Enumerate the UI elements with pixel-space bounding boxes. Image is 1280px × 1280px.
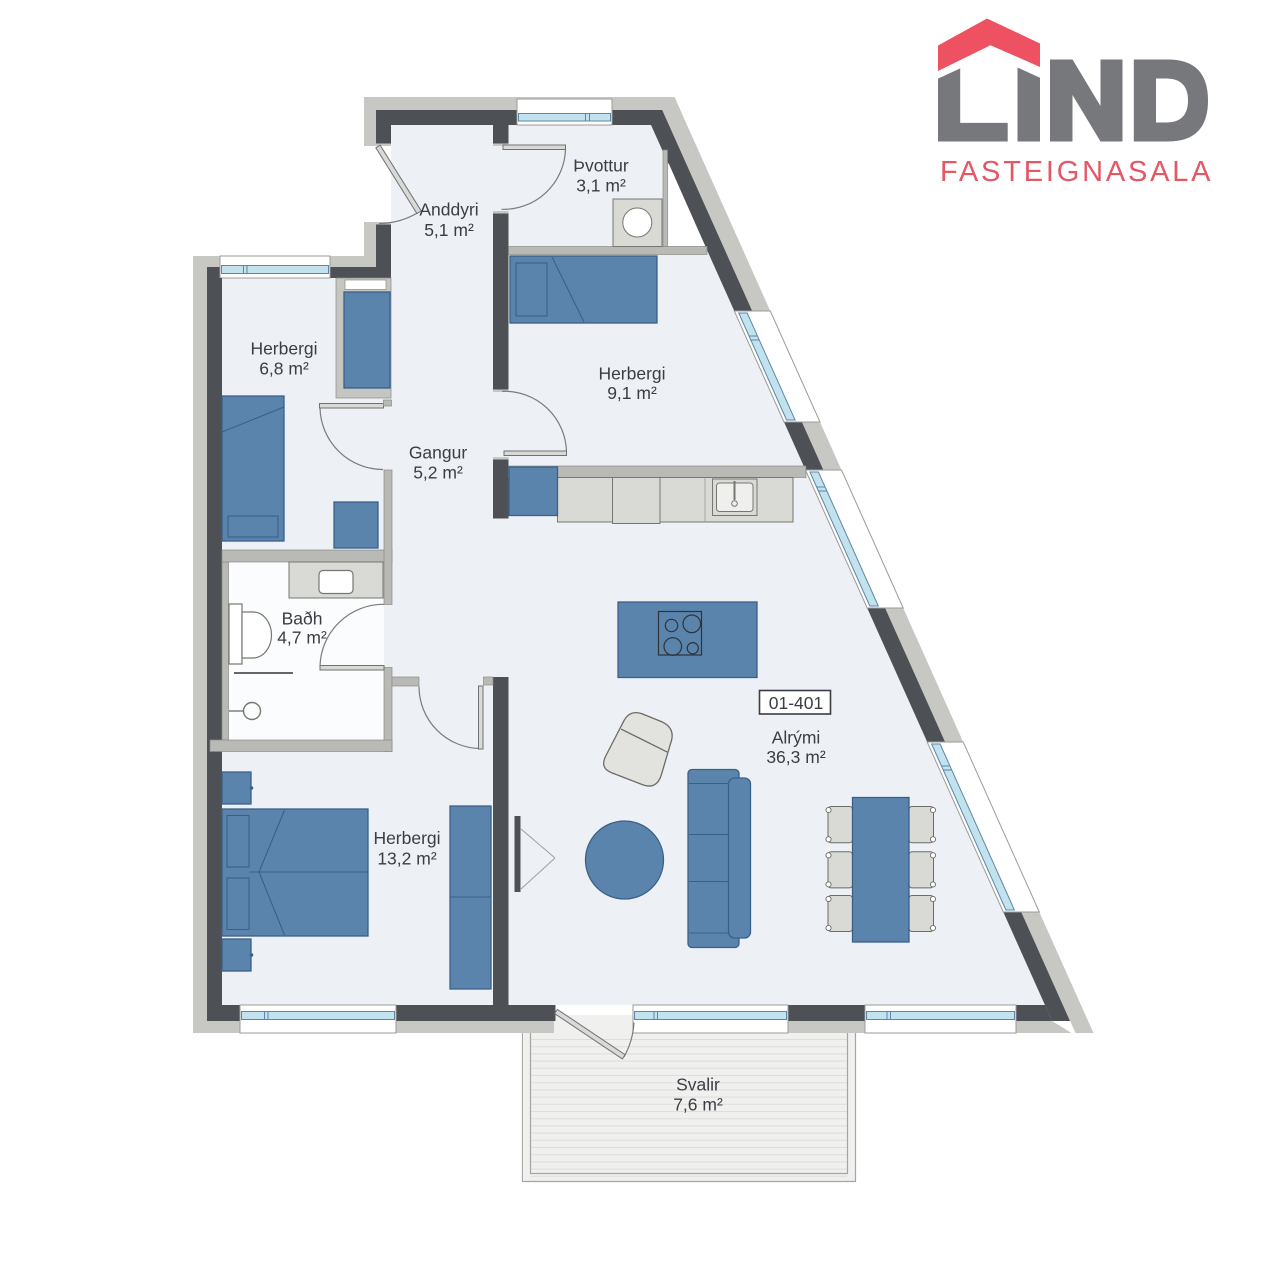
svg-text:Gangur: Gangur — [409, 443, 468, 463]
svg-text:Herbergi: Herbergi — [373, 828, 440, 848]
svg-text:Anddyri: Anddyri — [419, 200, 478, 220]
svg-text:9,1 m²: 9,1 m² — [607, 383, 657, 403]
svg-text:FASTEIGNASALA: FASTEIGNASALA — [940, 156, 1213, 188]
svg-text:4,7 m²: 4,7 m² — [277, 628, 327, 648]
svg-text:01-401: 01-401 — [769, 693, 824, 713]
svg-text:Herbergi: Herbergi — [250, 339, 317, 359]
svg-text:Baðh: Baðh — [282, 609, 323, 629]
svg-text:6,8 m²: 6,8 m² — [259, 359, 309, 379]
svg-text:13,2 m²: 13,2 m² — [377, 849, 436, 869]
svg-text:7,6 m²: 7,6 m² — [673, 1095, 723, 1115]
svg-text:Alrými: Alrými — [772, 728, 821, 748]
svg-text:Þvottur: Þvottur — [573, 156, 629, 176]
svg-text:3,1 m²: 3,1 m² — [576, 176, 626, 196]
svg-text:36,3 m²: 36,3 m² — [766, 747, 825, 767]
svg-text:Herbergi: Herbergi — [598, 364, 665, 384]
svg-text:Svalir: Svalir — [676, 1075, 720, 1095]
svg-text:5,2 m²: 5,2 m² — [413, 463, 463, 483]
svg-text:5,1 m²: 5,1 m² — [424, 220, 474, 240]
